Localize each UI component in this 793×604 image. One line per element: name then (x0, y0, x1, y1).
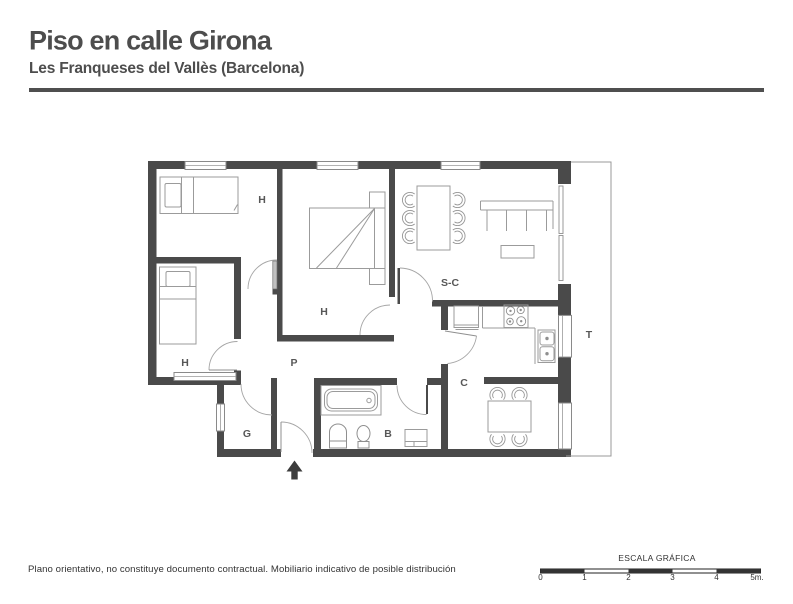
svg-text:2: 2 (626, 573, 631, 582)
svg-text:H: H (320, 306, 328, 318)
svg-text:C: C (460, 377, 468, 389)
svg-text:Les Franqueses del Vallès (Bar: Les Franqueses del Vallès (Barcelona) (29, 60, 304, 77)
svg-text:4: 4 (714, 573, 719, 582)
svg-text:P: P (290, 357, 297, 369)
svg-text:S-C: S-C (441, 277, 460, 289)
svg-text:0: 0 (538, 573, 543, 582)
svg-text:1: 1 (582, 573, 587, 582)
svg-text:3: 3 (670, 573, 675, 582)
svg-text:Piso en calle Girona: Piso en calle Girona (29, 26, 273, 56)
svg-text:ESCALA GRÁFICA: ESCALA GRÁFICA (618, 553, 695, 563)
svg-text:H: H (181, 357, 189, 369)
svg-text:H: H (258, 194, 266, 206)
svg-text:T: T (586, 329, 593, 341)
svg-text:Plano orientativo, no constitu: Plano orientativo, no constituye documen… (28, 564, 456, 575)
svg-text:G: G (243, 428, 251, 440)
svg-text:B: B (384, 428, 392, 440)
svg-text:5m.: 5m. (750, 573, 763, 582)
